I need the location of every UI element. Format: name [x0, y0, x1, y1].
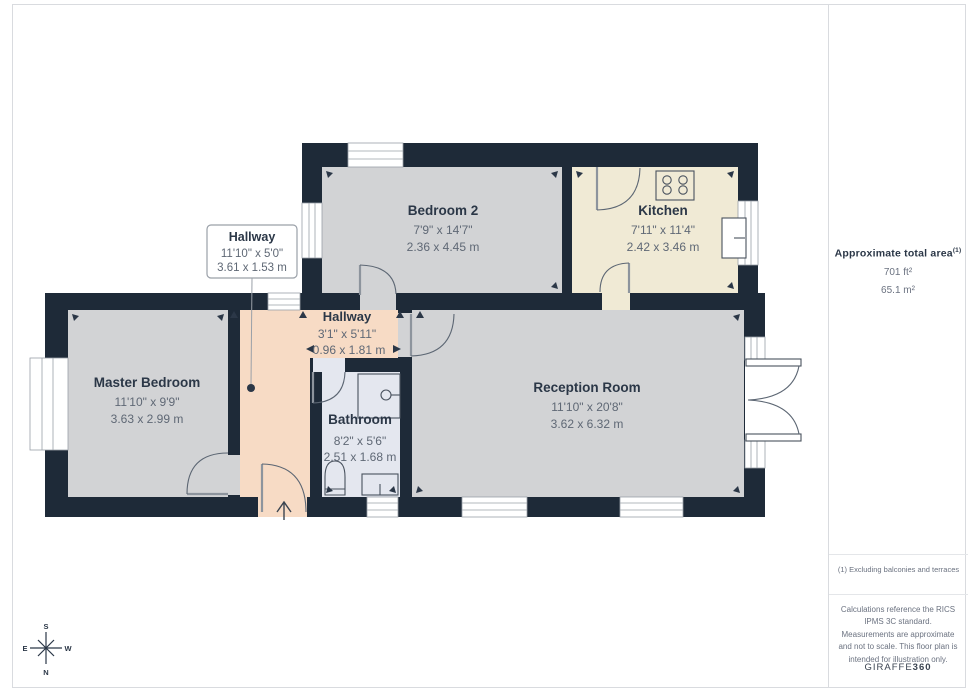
window	[367, 497, 398, 517]
callout-room-name: Hallway	[229, 230, 276, 244]
giraffe360-logo: GIRAFFE360	[828, 662, 968, 673]
svg-text:Bedroom 2: Bedroom 2	[408, 203, 479, 218]
footnote-marker: (1)	[953, 247, 962, 254]
callout-room-metric: 3.61 x 1.53 m	[217, 262, 287, 274]
window	[745, 440, 765, 468]
total-area-ft: 701 ft²	[828, 267, 968, 278]
total-area-m: 65.1 m²	[828, 285, 968, 296]
svg-text:3.62 x 6.32 m: 3.62 x 6.32 m	[551, 417, 624, 431]
total-area-block: Approximate total area(1) 701 ft² 65.1 m…	[828, 247, 968, 296]
svg-text:Kitchen: Kitchen	[638, 203, 688, 218]
svg-text:Hallway: Hallway	[323, 309, 372, 324]
label-bedroom2: Bedroom 2 7'9" x 14'7" 2.36 x 4.45 m	[407, 203, 480, 254]
compass-right-label: W	[64, 644, 72, 653]
window	[620, 497, 683, 517]
callout-anchor-dot	[247, 384, 255, 392]
kitchen-appliance-icon	[722, 218, 746, 258]
sidebar-rule	[829, 554, 968, 555]
window	[268, 293, 300, 310]
window	[348, 143, 403, 167]
window	[745, 337, 765, 360]
compass-left-label: E	[22, 644, 27, 653]
callout-room-imperial: 11'10" x 5'0"	[221, 248, 283, 260]
compass-bottom-label: N	[43, 668, 48, 677]
window	[302, 203, 322, 258]
svg-text:8'2" x 5'6": 8'2" x 5'6"	[334, 434, 386, 448]
room-hallway-floor-vertical	[240, 310, 310, 497]
disclaimer-text: Calculations reference the RICS IPMS 3C …	[837, 604, 959, 666]
sidebar: Approximate total area(1) 701 ft² 65.1 m…	[828, 4, 968, 688]
svg-text:0.96 x 1.81 m: 0.96 x 1.81 m	[313, 343, 386, 357]
svg-text:3.63 x 2.99 m: 3.63 x 2.99 m	[111, 412, 184, 426]
svg-text:3'1" x 5'11": 3'1" x 5'11"	[318, 327, 376, 341]
svg-text:Reception Room: Reception Room	[533, 380, 640, 395]
window	[462, 497, 527, 517]
compass-icon: S N E W	[22, 622, 72, 677]
svg-text:2.42 x 3.46 m: 2.42 x 3.46 m	[627, 240, 700, 254]
window-bay	[30, 358, 68, 450]
sidebar-rule	[829, 594, 968, 595]
total-area-title: Approximate total area(1)	[828, 247, 968, 260]
svg-text:2.36 x 4.45 m: 2.36 x 4.45 m	[407, 240, 480, 254]
svg-text:Master Bedroom: Master Bedroom	[94, 375, 201, 390]
svg-text:Bathroom: Bathroom	[328, 412, 392, 427]
svg-text:11'10" x 9'9": 11'10" x 9'9"	[115, 395, 180, 409]
svg-text:7'11" x 11'4": 7'11" x 11'4"	[631, 223, 695, 237]
compass-top-label: S	[43, 622, 48, 631]
svg-text:7'9" x 14'7": 7'9" x 14'7"	[413, 223, 472, 237]
footnote-text: (1) Excluding balconies and terraces	[829, 565, 968, 574]
svg-text:2.51 x 1.68 m: 2.51 x 1.68 m	[324, 450, 397, 464]
svg-text:11'10" x 20'8": 11'10" x 20'8"	[551, 400, 623, 414]
label-bathroom: Bathroom 8'2" x 5'6" 2.51 x 1.68 m	[324, 412, 397, 464]
